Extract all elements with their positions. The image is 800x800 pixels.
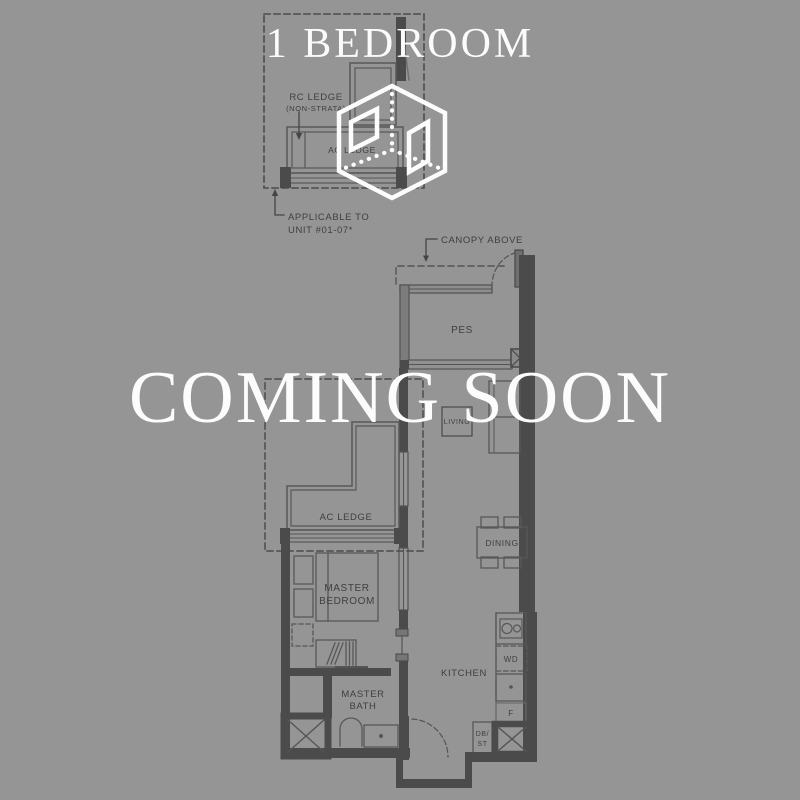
unit-number-label: UNIT #01-07* <box>288 225 353 236</box>
master-bath-label-1: MASTER <box>341 689 384 700</box>
entry-door-arc <box>412 719 448 757</box>
master-bedroom-label-1: MASTER <box>324 583 369 594</box>
gate-swing-arc <box>492 253 515 287</box>
fridge-label: F <box>508 709 514 718</box>
plan-title: 1 BEDROOM <box>0 20 800 68</box>
isometric-cube-logo-icon <box>332 80 452 206</box>
dining-chair <box>481 557 498 568</box>
bath-door <box>396 629 408 661</box>
master-bath-label-2: BATH <box>349 701 376 712</box>
canopy-above: CANOPY ABOVE <box>396 235 523 284</box>
arrow-down-icon <box>423 256 429 263</box>
pes-area: PES <box>400 250 529 369</box>
kitchen-label: KITCHEN <box>441 668 487 679</box>
dining-label: DINING <box>485 538 518 548</box>
db-label-2: ST <box>477 741 487 748</box>
main-plan: CANOPY ABOVE PES <box>265 235 537 788</box>
dining-chair <box>504 557 521 568</box>
master-bath: MASTER BATH <box>281 668 410 758</box>
pes-label: PES <box>451 325 473 336</box>
dining-chair <box>481 517 498 528</box>
washer-dryer-label: WD <box>504 655 519 664</box>
db-label-1: DB/ <box>476 731 489 738</box>
coming-soon-floorplan-page: RC LEDGE (NON-STRATA) AC LEDGE APPLICABL… <box>0 0 800 800</box>
arrow-down-icon <box>296 133 302 140</box>
bedside-table <box>294 589 313 617</box>
kitchen-area: WD F DB/ ST KITCHEN <box>441 613 529 754</box>
toilet <box>340 718 362 746</box>
applicable-to-label: APPLICABLE TO <box>288 212 369 223</box>
coming-soon-watermark: COMING SOON <box>0 356 800 441</box>
bedside-table <box>294 556 313 584</box>
canopy-label: CANOPY ABOVE <box>441 235 523 246</box>
entry-door-leaf <box>402 716 409 760</box>
master-bedroom-label-2: BEDROOM <box>319 596 375 607</box>
ac-ledge-label: AC LEDGE <box>320 512 373 523</box>
dining-chair <box>504 517 521 528</box>
dashed-fixture <box>292 624 313 646</box>
bath-wall <box>289 668 391 676</box>
